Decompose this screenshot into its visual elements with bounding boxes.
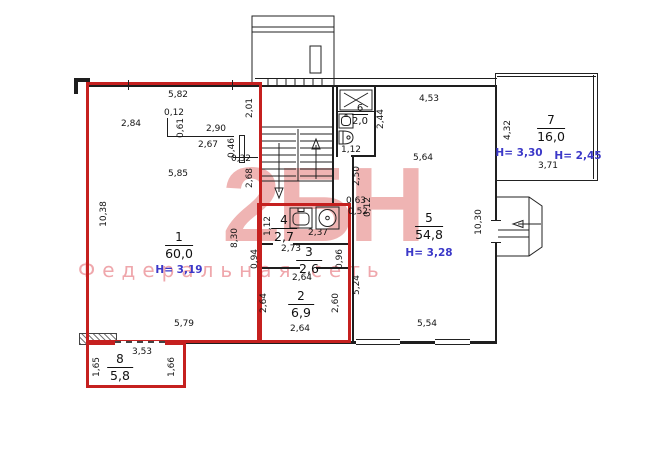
- room-label-7: 7 16,0: [537, 114, 565, 144]
- dimension-label: 2,90: [206, 124, 226, 134]
- room-area: 6,9: [288, 305, 314, 320]
- room-number: 3: [296, 246, 322, 261]
- dimension-label: 0,12: [164, 108, 184, 118]
- room-area: 2,7: [271, 229, 297, 244]
- door-tick-top: [491, 220, 501, 221]
- room-height-label: H= 3,19: [155, 264, 202, 276]
- window-tick: [232, 80, 233, 90]
- dimension-label: 5,82: [168, 90, 188, 100]
- window: [356, 339, 400, 345]
- room-height-label: H= 3,28: [405, 247, 452, 259]
- room-area: 2,0: [352, 115, 368, 127]
- dimension-label: 4,53: [419, 94, 439, 104]
- dimension-label: 2,44: [376, 109, 386, 129]
- room-number: 5: [415, 212, 443, 227]
- dimension-label: 5,79: [174, 319, 194, 329]
- stairs-arrow-down-icon: [275, 143, 283, 198]
- room-label-8: 8 5,8: [107, 353, 133, 383]
- entrance-porch-top: [252, 16, 334, 86]
- floor-plan: 2БН Федеральная сеть: [0, 0, 654, 465]
- dimension-label: 3,53: [132, 347, 152, 357]
- dimension-label: 1,12: [341, 145, 361, 155]
- room-label-2: 2 6,9: [288, 290, 314, 320]
- dimension-label: 0,46: [227, 138, 237, 158]
- room-area: 5,8: [107, 368, 133, 383]
- room-label-6: 6 2,0: [352, 103, 368, 127]
- dimension-label: 0,96: [335, 249, 345, 269]
- room-height-label: H= 3,30: [495, 147, 542, 159]
- staircase: [262, 127, 332, 198]
- room-number: 6: [352, 103, 368, 115]
- dimension-label: 2,60: [331, 293, 341, 313]
- dimension-label: 5,64: [413, 153, 433, 163]
- room-number: 1: [165, 231, 193, 246]
- dimension-label: 2,64: [290, 324, 310, 334]
- stairs-arrow-up-icon: [312, 139, 320, 179]
- dimension-label: 4,32: [503, 120, 513, 140]
- dimension-label: 2,64: [259, 293, 269, 313]
- window: [435, 339, 470, 345]
- dimension-label: 1,65: [92, 357, 102, 377]
- opening-dashed: [115, 341, 165, 346]
- dimension-label: 2,84: [121, 119, 141, 129]
- room-area: 2,6: [296, 261, 322, 276]
- room-number: 2: [288, 290, 314, 305]
- room-label-3: 3 2,6: [296, 246, 322, 276]
- dimension-label: 10,30: [474, 209, 484, 235]
- washbasin-icon: [339, 114, 353, 128]
- dimension-label: 8,30: [230, 228, 240, 248]
- entrance-arrow-icon: [513, 221, 541, 228]
- room-area: 16,0: [537, 129, 565, 144]
- door-tick-bottom: [491, 242, 501, 243]
- entrance-porch-right: [497, 197, 542, 256]
- toilet-icon: [339, 131, 353, 144]
- room-number: 8: [107, 353, 133, 368]
- room-area: 54,8: [415, 227, 443, 242]
- room-number: 4: [271, 214, 297, 229]
- dimension-label: 5,85: [168, 169, 188, 179]
- dimension-label: 0,61: [176, 118, 186, 138]
- dimension-label: 5,54: [417, 319, 437, 329]
- dimension-label: 2,50: [352, 166, 362, 186]
- room-label-1: 1 60,0: [165, 231, 193, 261]
- dimension-label: 2,67: [198, 140, 218, 150]
- room-height-label: H= 2,45: [554, 150, 601, 162]
- dimension-label: 2,68: [245, 168, 255, 188]
- dimension-label: 0,12: [363, 197, 373, 217]
- dimension-label: 2,37: [308, 228, 328, 238]
- dimension-label: 0,94: [250, 249, 260, 269]
- dimension-label: 2,01: [245, 98, 255, 118]
- room-number: 7: [537, 114, 565, 129]
- dimension-label: 5,24: [352, 275, 362, 295]
- dimension-label: 3,71: [538, 161, 558, 171]
- window-tick: [128, 80, 129, 90]
- room-label-4: 4 2,7: [271, 214, 297, 244]
- room-area: 60,0: [165, 246, 193, 261]
- red-contour-room1: [86, 82, 262, 343]
- dimension-label: 10,38: [99, 201, 109, 227]
- dimension-label: 1,66: [167, 357, 177, 377]
- room-label-5: 5 54,8: [415, 212, 443, 242]
